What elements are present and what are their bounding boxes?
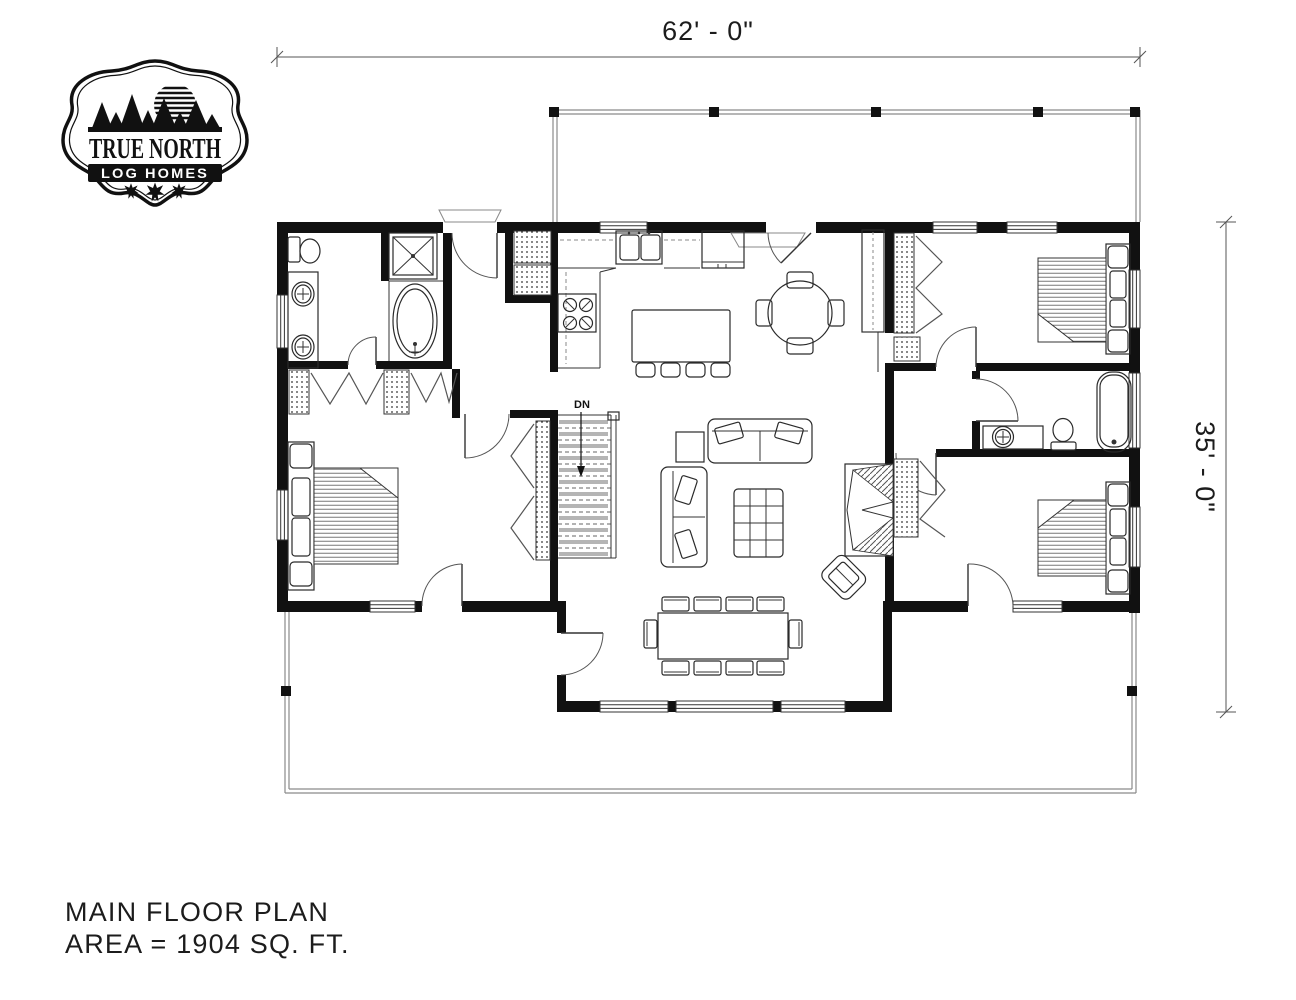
pillow xyxy=(1110,300,1126,327)
deck-posts xyxy=(549,107,1140,117)
title-block: MAIN FLOOR PLAN AREA = 1904 SQ. FT. xyxy=(65,897,350,959)
pillow xyxy=(1110,509,1126,536)
ottoman xyxy=(734,489,783,557)
front-deck xyxy=(281,612,1137,793)
stool xyxy=(711,363,730,377)
master-bedroom xyxy=(288,442,398,590)
end-table xyxy=(676,432,704,462)
width-dimension-label: 62' - 0" xyxy=(662,16,754,46)
bathroom xyxy=(983,372,1131,452)
ensuite-bathroom xyxy=(288,233,443,368)
bathtub xyxy=(1097,372,1131,452)
bedroom2-door xyxy=(936,327,976,367)
logo: TRUE NORTH LOG HOMES xyxy=(63,61,247,205)
bedroom3-deck-door xyxy=(968,564,1013,606)
logo-name-text: TRUE NORTH xyxy=(89,133,221,165)
bifold-doors xyxy=(511,496,534,560)
deck-post xyxy=(1127,686,1137,696)
pillow xyxy=(1110,271,1126,298)
bed xyxy=(1038,482,1130,594)
deck-post xyxy=(281,686,291,696)
dining-deck-door xyxy=(561,633,603,675)
window xyxy=(1129,507,1140,567)
window xyxy=(277,295,288,348)
toilet xyxy=(288,237,320,263)
bifold-doors xyxy=(511,424,534,488)
master-deck-door xyxy=(422,564,462,606)
window xyxy=(1013,601,1062,612)
armchair xyxy=(819,553,868,602)
window xyxy=(277,490,288,540)
plan-area: AREA = 1904 SQ. FT. xyxy=(65,929,350,959)
closet xyxy=(289,370,309,414)
breakfast-table xyxy=(756,272,844,354)
toilet xyxy=(1051,419,1076,451)
dining-chairs xyxy=(644,597,802,675)
bifold-doors xyxy=(411,373,457,402)
chair xyxy=(787,272,813,288)
linen-closet xyxy=(894,337,920,361)
pantry xyxy=(894,233,914,333)
dimension-top: 62' - 0" xyxy=(271,16,1146,67)
closet xyxy=(894,459,918,537)
bathtub xyxy=(389,281,443,361)
closet xyxy=(384,370,409,414)
kitchen-sink xyxy=(616,231,662,264)
bedroom-2 xyxy=(1038,244,1130,354)
windows xyxy=(277,222,1140,712)
window xyxy=(781,701,845,712)
dining-table xyxy=(658,613,788,659)
bifold-doors xyxy=(916,236,942,333)
bifold-doors xyxy=(311,373,383,404)
stool xyxy=(686,363,705,377)
tall-cabinets xyxy=(862,230,884,372)
fireplace xyxy=(845,464,893,556)
refrigerator xyxy=(702,231,744,268)
window xyxy=(933,222,977,233)
pillow xyxy=(292,478,310,516)
stairs-down-label: DN xyxy=(574,399,590,411)
double-vanity xyxy=(288,272,318,368)
window xyxy=(1129,270,1140,328)
vanity xyxy=(983,426,1043,449)
bed xyxy=(288,442,398,590)
logo-banner-text: LOG HOMES xyxy=(101,165,209,181)
sofa xyxy=(708,419,812,463)
kitchen xyxy=(558,230,884,377)
pillow xyxy=(1110,538,1126,565)
pillow xyxy=(292,518,310,556)
dimension-right: 35' - 0" xyxy=(1190,216,1236,718)
plan-title: MAIN FLOOR PLAN xyxy=(65,897,329,927)
stairs: DN xyxy=(558,399,619,558)
sofa xyxy=(661,467,707,567)
coat-closet xyxy=(514,231,551,263)
exterior-walls xyxy=(277,222,1140,712)
front-entry-door xyxy=(731,233,811,263)
window xyxy=(370,601,415,612)
stool xyxy=(636,363,655,377)
range-stove xyxy=(558,294,596,332)
window xyxy=(676,701,773,712)
coat-closet xyxy=(514,265,551,295)
stool xyxy=(661,363,680,377)
window xyxy=(1007,222,1057,233)
bedroom-3 xyxy=(1038,482,1130,594)
chair xyxy=(787,338,813,354)
kitchen-island xyxy=(632,310,730,377)
living-room xyxy=(661,419,893,602)
closet xyxy=(536,421,550,560)
bed xyxy=(1038,244,1130,354)
ensuite-door xyxy=(348,337,376,365)
rear-deck xyxy=(549,107,1140,222)
window xyxy=(600,701,668,712)
shower xyxy=(389,233,437,279)
height-dimension-label: 35' - 0" xyxy=(1190,421,1220,513)
floor-plan-drawing: DN xyxy=(0,0,1296,1000)
bifold-doors xyxy=(920,461,945,537)
master-bedroom-door xyxy=(465,414,509,458)
bathroom-door xyxy=(976,379,1018,421)
dining-room xyxy=(644,597,802,675)
floor-plan-page: DN xyxy=(0,0,1296,1000)
